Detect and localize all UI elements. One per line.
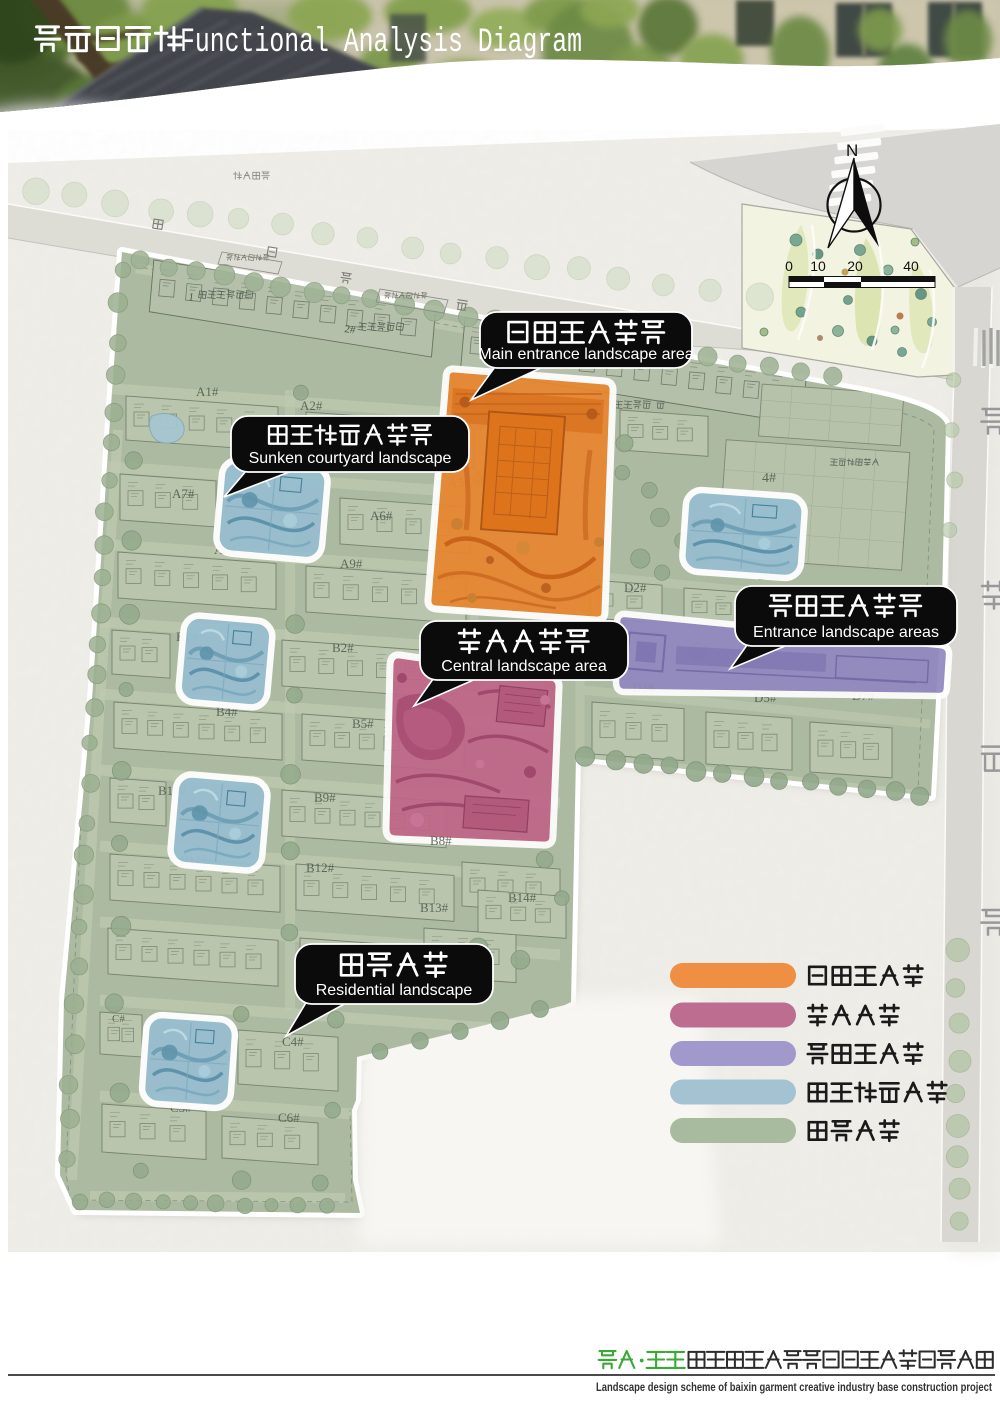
svg-text:A2#: A2# <box>300 398 323 413</box>
svg-text:B8#: B8# <box>430 833 452 848</box>
svg-text:Landscape design scheme of bai: Landscape design scheme of baixin garmen… <box>596 1382 992 1394</box>
svg-text:A6#: A6# <box>370 508 393 523</box>
svg-text:40: 40 <box>903 258 919 274</box>
svg-text:0: 0 <box>785 258 793 274</box>
svg-text:A1#: A1# <box>196 384 219 399</box>
svg-text:20: 20 <box>847 258 863 274</box>
svg-text:B13#: B13# <box>420 900 449 915</box>
svg-text:B2#: B2# <box>332 640 354 655</box>
svg-text:B5#: B5# <box>352 716 374 731</box>
svg-text:C6#: C6# <box>278 1110 300 1125</box>
svg-text:N: N <box>846 141 858 160</box>
svg-text:10: 10 <box>810 258 826 274</box>
svg-text:4#: 4# <box>762 471 776 486</box>
svg-text:Sunken courtyard landscape: Sunken courtyard landscape <box>249 450 452 467</box>
svg-text:A9#: A9# <box>340 556 363 571</box>
svg-text:Functional Analysis Diagram: Functional Analysis Diagram <box>180 24 582 62</box>
svg-text:B14#: B14# <box>508 890 537 905</box>
svg-text:A7#: A7# <box>172 486 195 501</box>
svg-text:D2#: D2# <box>624 580 647 595</box>
svg-text:B9#: B9# <box>314 790 336 805</box>
svg-text:2#: 2# <box>344 323 357 336</box>
svg-text:Entrance landscape areas: Entrance landscape areas <box>753 624 939 641</box>
svg-text:Residential landscape: Residential landscape <box>316 982 473 999</box>
svg-text:B12#: B12# <box>306 860 335 875</box>
svg-text:C#: C# <box>112 1013 125 1025</box>
svg-text:Main entrance landscape area: Main entrance landscape area <box>478 346 693 363</box>
svg-text:Central landscape area: Central landscape area <box>441 658 607 675</box>
